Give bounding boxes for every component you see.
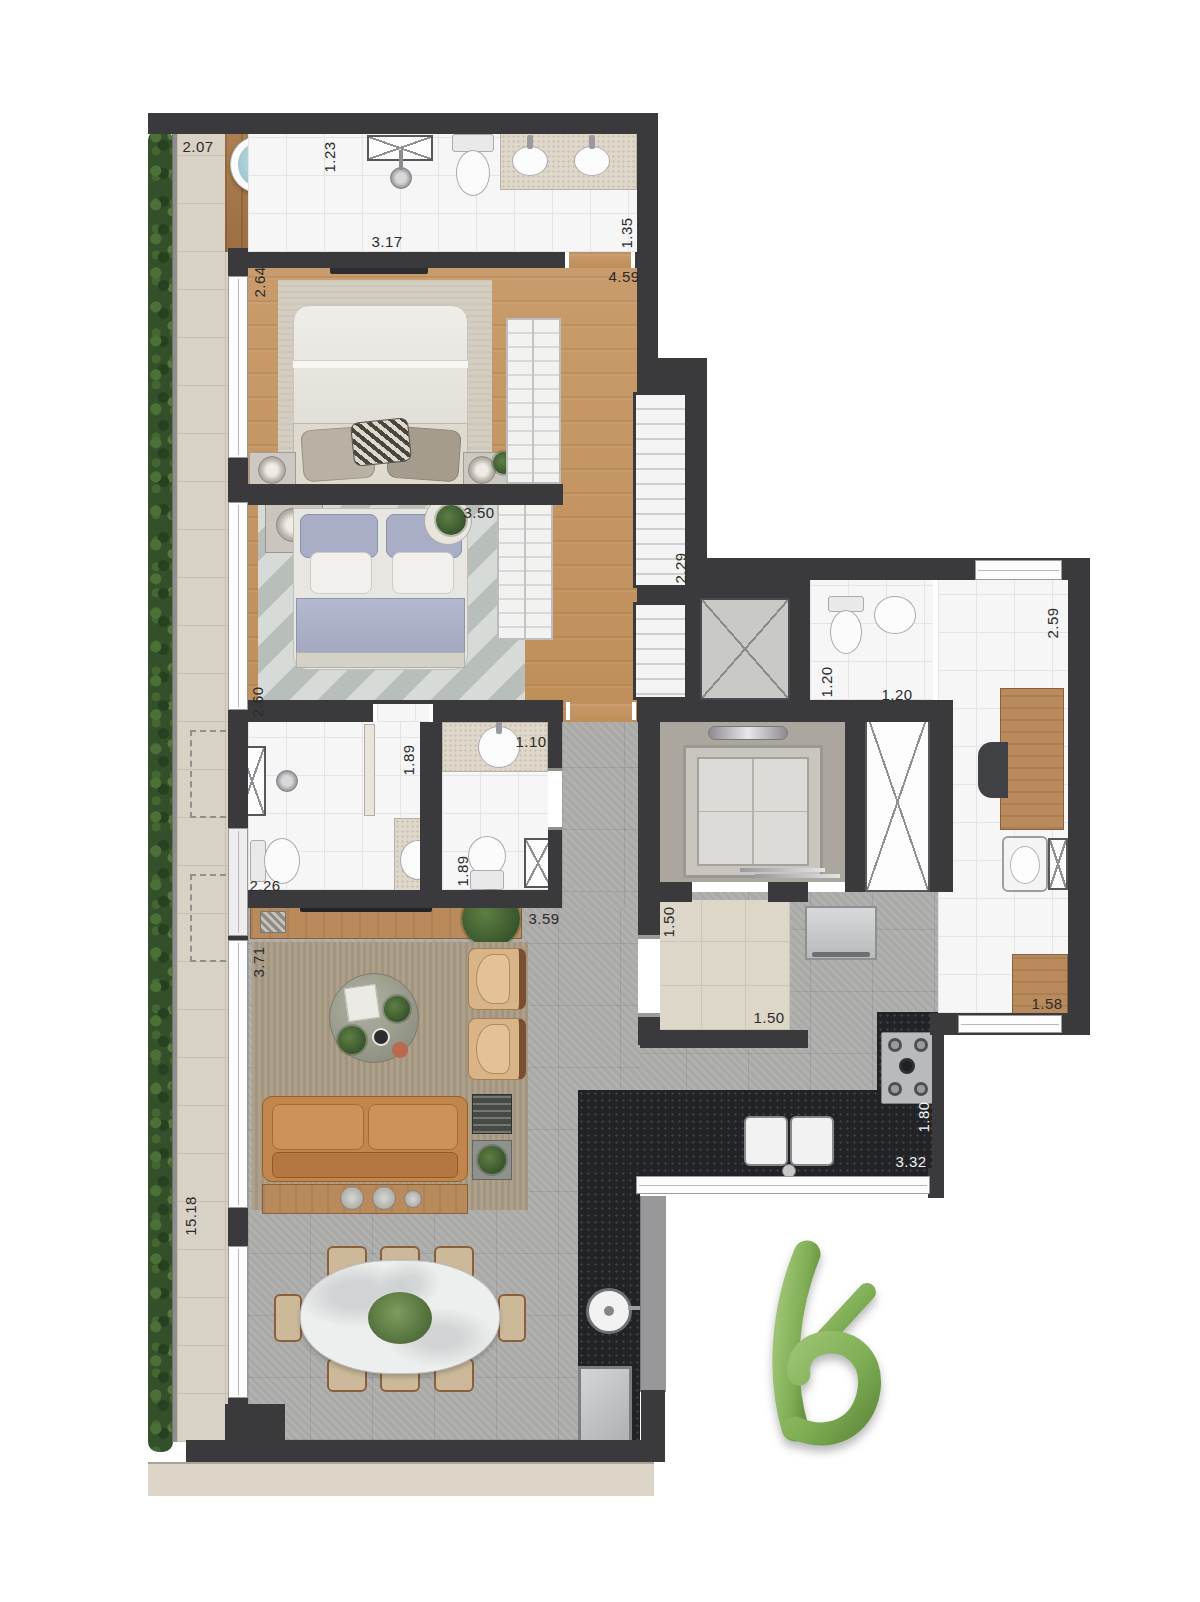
dimension-label: 2.26 [250,877,281,894]
dimension-label: 3.50 [464,504,495,521]
dimension-label: 1.50 [660,907,677,938]
dimension-label: 2.60 [249,687,266,718]
dimension-label: 15.18 [182,1196,199,1236]
dimension-label: 1.58 [1032,995,1063,1012]
dimension-label: 1.80 [915,1102,932,1133]
dimension-labels: 2.071.233.171.354.592.643.502.292.602.59… [0,0,1200,1602]
dimension-label: 4.59 [609,268,640,285]
dimension-label: 1.89 [454,856,471,887]
dimension-label: 2.07 [183,138,214,155]
dimension-label: 1.89 [400,745,417,776]
dimension-label: 2.59 [1044,608,1061,639]
floor-plan: 2.071.233.171.354.592.643.502.292.602.59… [0,0,1200,1602]
dimension-label: 1.10 [516,733,547,750]
dimension-label: 1.50 [754,1009,785,1026]
dimension-label: 3.71 [250,947,267,978]
dimension-label: 2.64 [251,267,268,298]
dimension-label: 3.59 [529,910,560,927]
dimension-label: 1.20 [882,686,913,703]
dimension-label: 3.17 [372,233,403,250]
dimension-label: 1.20 [818,667,835,698]
dimension-label: 2.29 [672,553,689,584]
dimension-label: 1.35 [618,218,635,249]
dimension-label: 3.32 [896,1153,927,1170]
dimension-label: 1.23 [321,142,338,173]
